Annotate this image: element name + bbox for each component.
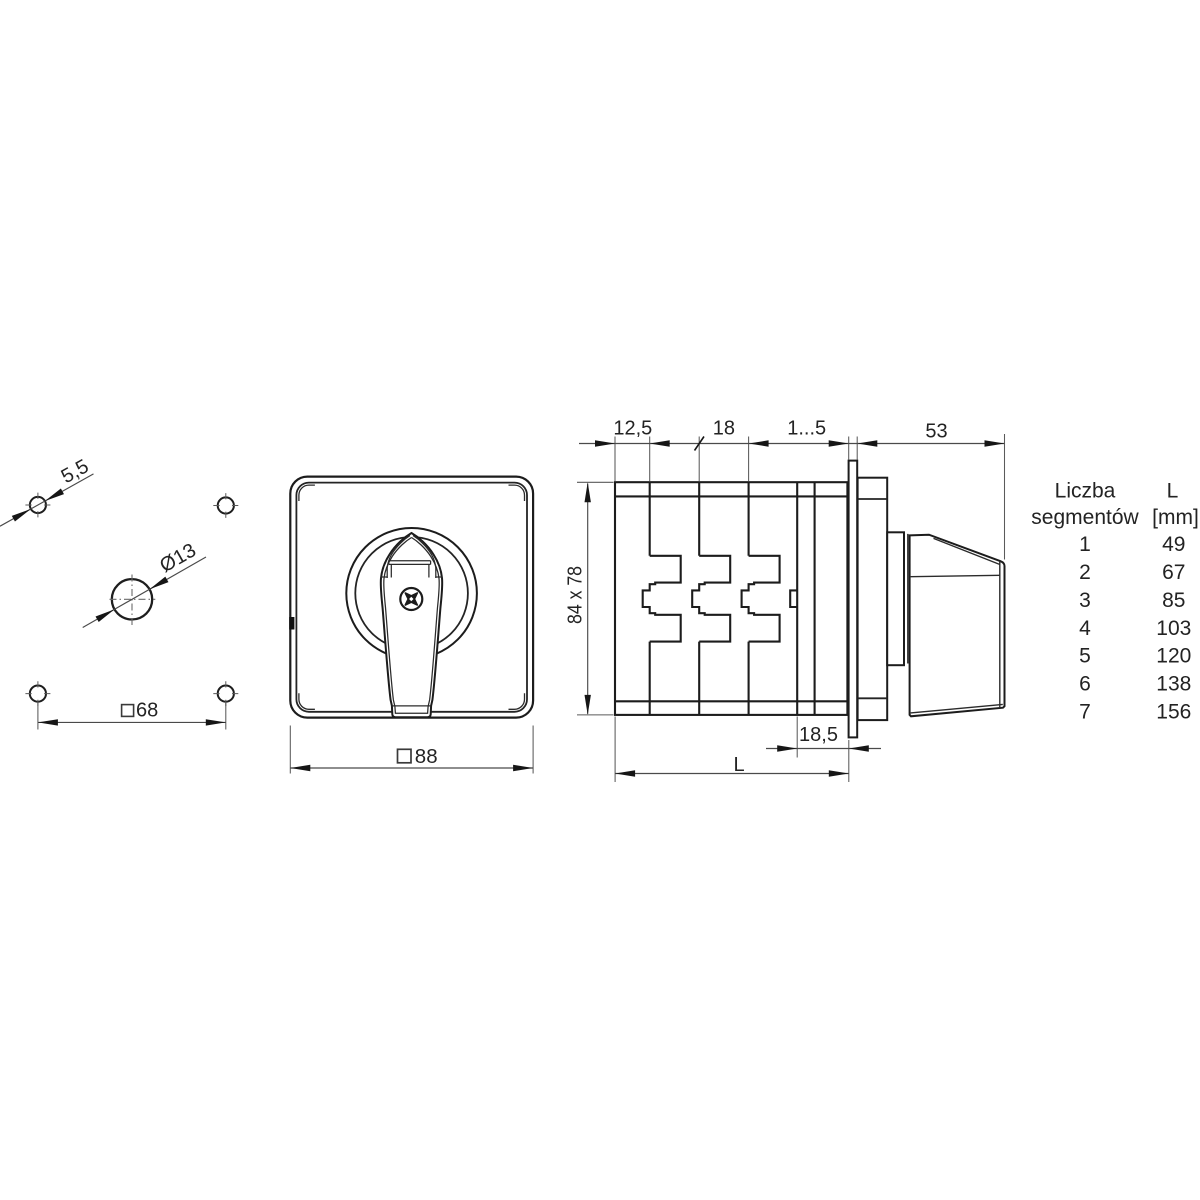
svg-text:5: 5 <box>1079 645 1091 668</box>
svg-text:88: 88 <box>415 745 438 768</box>
svg-text:L: L <box>1167 480 1179 503</box>
svg-text:segmentów: segmentów <box>1031 506 1139 529</box>
svg-text:53: 53 <box>925 420 947 442</box>
svg-text:85: 85 <box>1162 589 1185 612</box>
svg-text:18: 18 <box>713 417 735 439</box>
svg-text:18,5: 18,5 <box>799 724 838 746</box>
svg-text:4: 4 <box>1079 617 1091 640</box>
svg-text:120: 120 <box>1156 645 1191 668</box>
svg-text:49: 49 <box>1162 533 1185 556</box>
svg-text:L: L <box>733 754 744 776</box>
svg-text:1...5: 1...5 <box>787 417 826 439</box>
svg-text:156: 156 <box>1156 700 1191 723</box>
svg-text:103: 103 <box>1156 617 1191 640</box>
svg-text:7: 7 <box>1079 700 1091 723</box>
svg-text:67: 67 <box>1162 561 1185 584</box>
svg-text:1: 1 <box>1079 533 1091 556</box>
svg-text:6: 6 <box>1079 673 1091 696</box>
svg-text:Liczba: Liczba <box>1055 480 1116 503</box>
svg-text:2: 2 <box>1079 561 1091 584</box>
svg-text:3: 3 <box>1079 589 1091 612</box>
svg-text:84 x 78: 84 x 78 <box>565 566 587 624</box>
svg-text:138: 138 <box>1156 673 1191 696</box>
svg-text:[mm]: [mm] <box>1152 506 1199 529</box>
svg-text:12,5: 12,5 <box>613 417 652 439</box>
svg-text:68: 68 <box>136 700 158 722</box>
